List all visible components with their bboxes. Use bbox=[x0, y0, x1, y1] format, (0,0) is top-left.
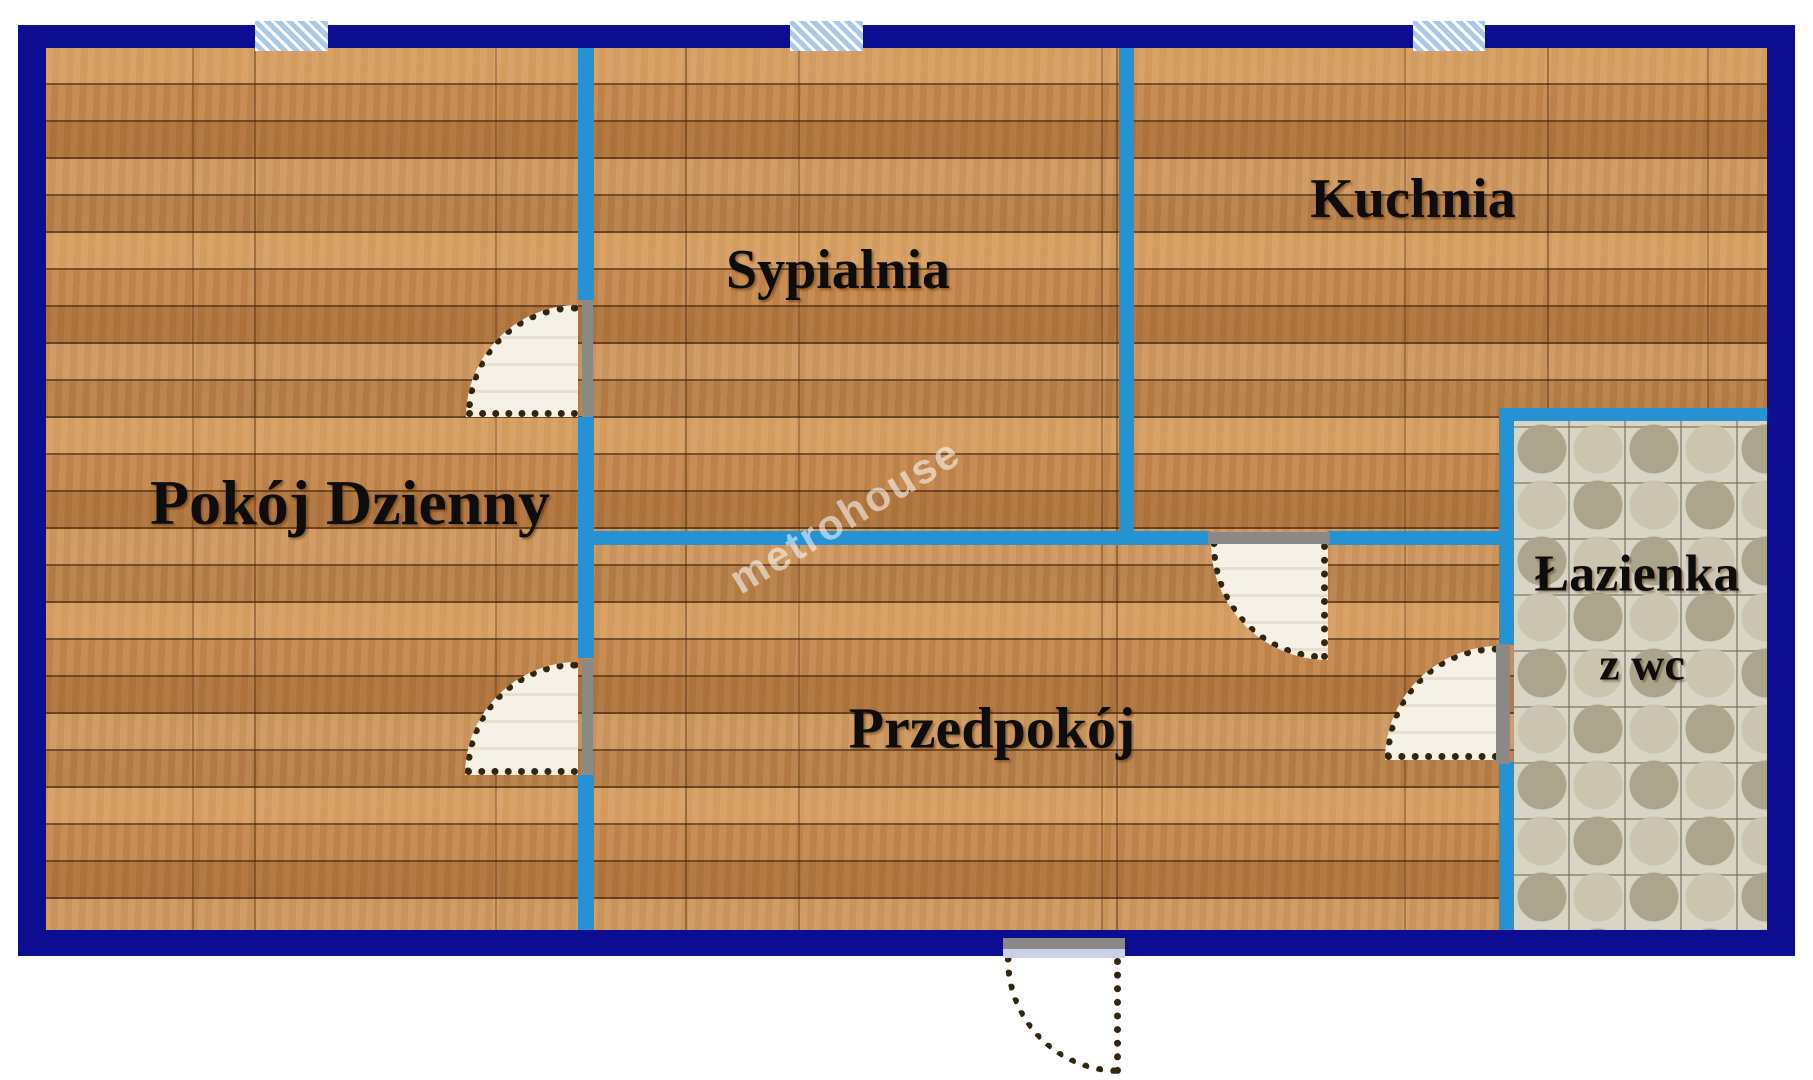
wall-living-hall-middle bbox=[578, 417, 594, 658]
wall-bathroom-left-lower bbox=[1499, 762, 1514, 930]
window-bedroom bbox=[790, 21, 863, 51]
wall-bedroom-kitchen bbox=[1119, 48, 1134, 531]
room-label-living-room: Pokój Dzienny bbox=[150, 466, 550, 540]
room-label-bedroom: Sypialnia bbox=[726, 238, 950, 302]
wall-bathroom-top bbox=[1499, 408, 1767, 421]
entrance-door-sill bbox=[1003, 949, 1125, 958]
window-living-room bbox=[255, 21, 328, 51]
room-label-bathroom: Łazienka bbox=[1534, 545, 1739, 604]
entrance-door-swing bbox=[1005, 958, 1121, 1074]
room-label-kitchen: Kuchnia bbox=[1310, 167, 1515, 231]
wall-living-hall-lower bbox=[578, 775, 594, 930]
door-living-room-jamb bbox=[582, 659, 593, 775]
door-bedroom-jamb bbox=[582, 300, 593, 417]
room-label-bathroom-line2: z wc bbox=[1599, 638, 1685, 691]
wall-bedroom-hall bbox=[594, 531, 1210, 545]
wall-hall-kitchen bbox=[1328, 531, 1500, 545]
floor-plan: Pokój Dzienny Sypialnia Kuchnia Przedpok… bbox=[0, 0, 1813, 1080]
window-kitchen bbox=[1413, 21, 1485, 51]
door-bathroom-jamb bbox=[1496, 644, 1510, 764]
door-kitchen-lintel bbox=[1208, 532, 1330, 544]
wall-living-bedroom-upper bbox=[578, 48, 594, 300]
wall-bathroom-left-upper bbox=[1499, 408, 1514, 645]
entrance-door-lintel bbox=[1003, 938, 1125, 949]
room-label-hallway: Przedpokój bbox=[849, 695, 1136, 762]
